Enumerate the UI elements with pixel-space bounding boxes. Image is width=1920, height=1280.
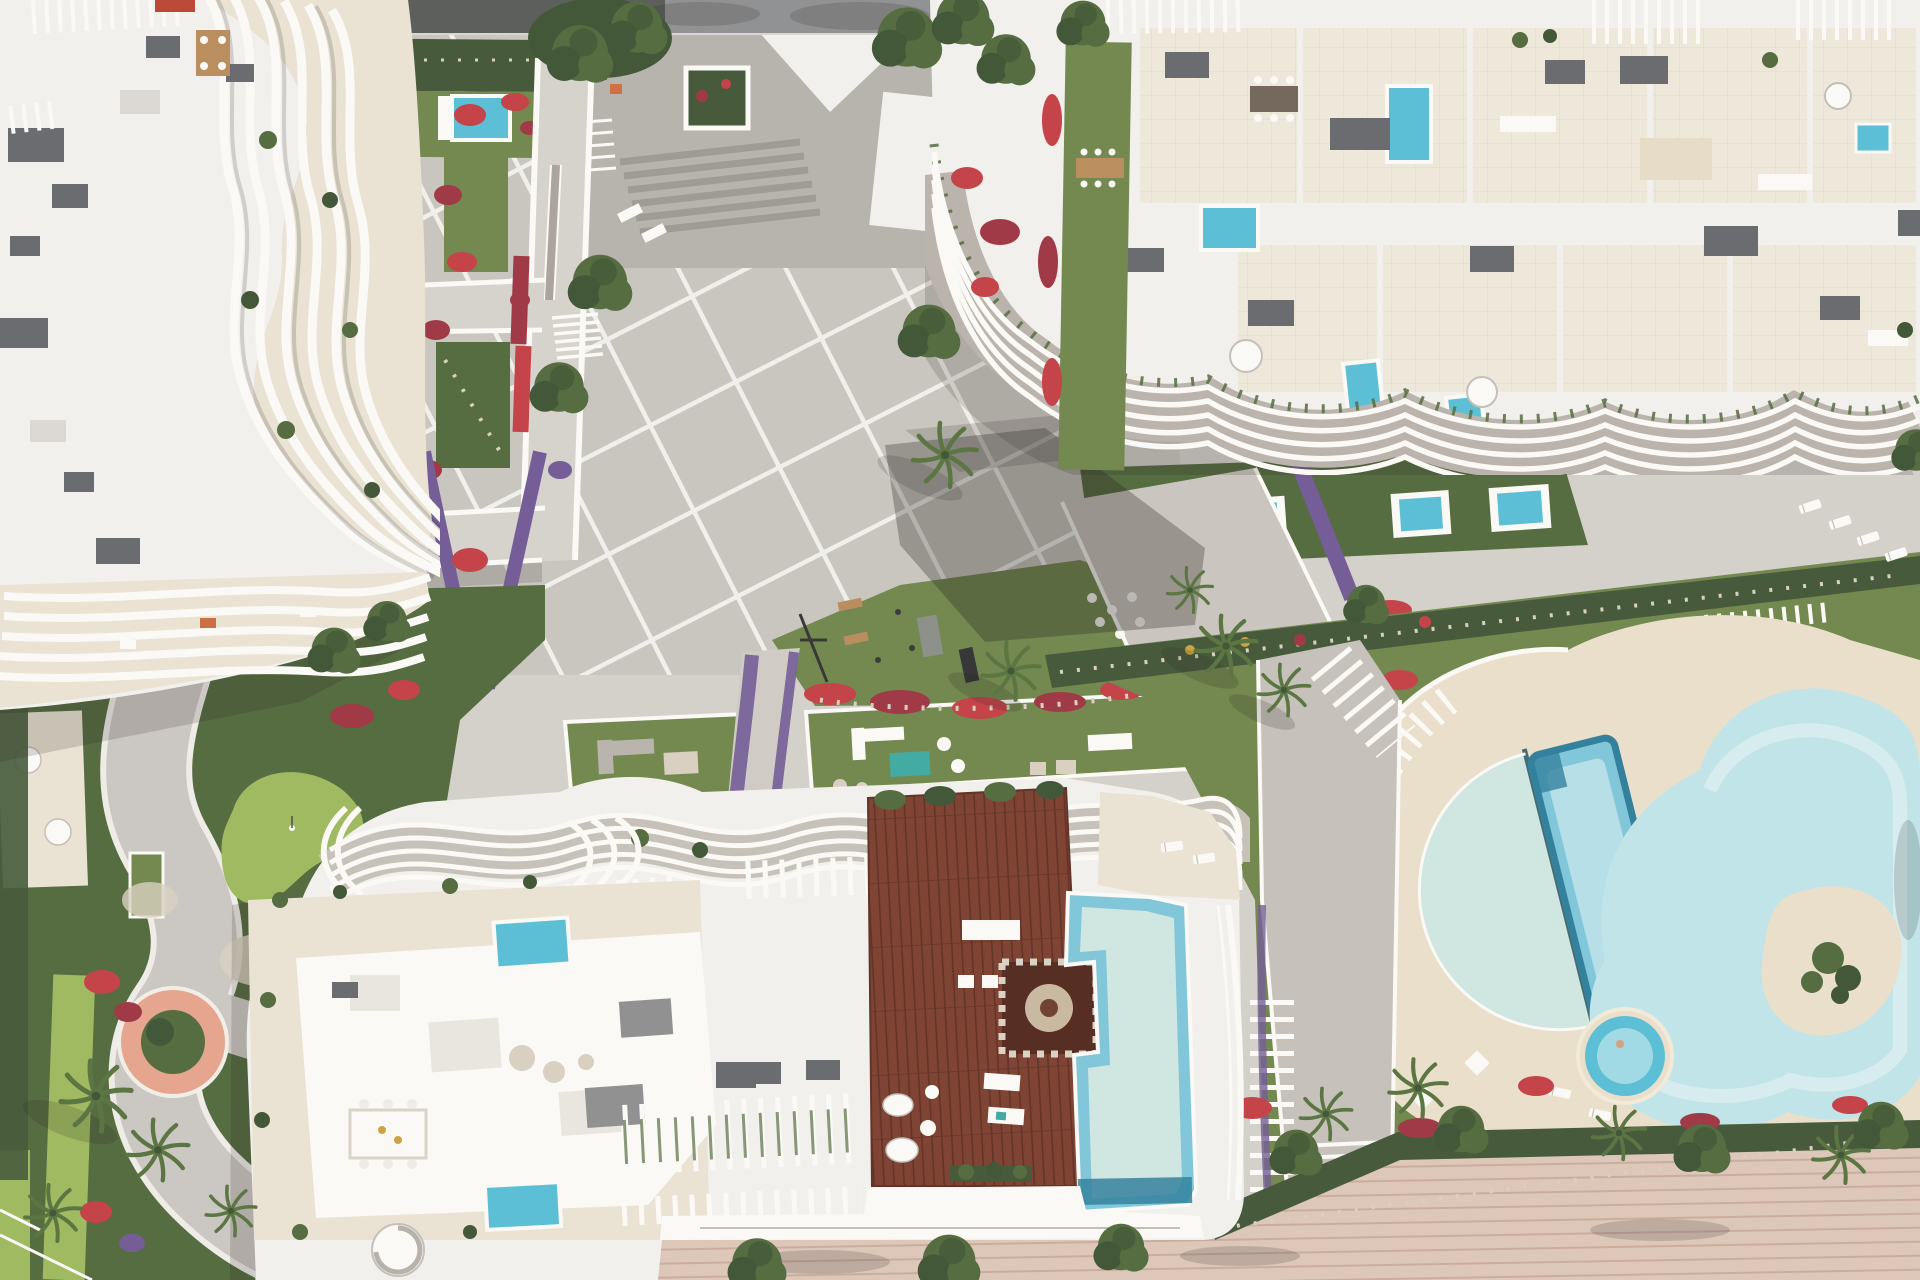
aerial-render: Aerial top-down architectural rendering … <box>0 0 1920 1280</box>
masterplan-canvas: Aerial top-down architectural rendering … <box>0 0 1920 1280</box>
light-wash <box>0 0 1920 1280</box>
